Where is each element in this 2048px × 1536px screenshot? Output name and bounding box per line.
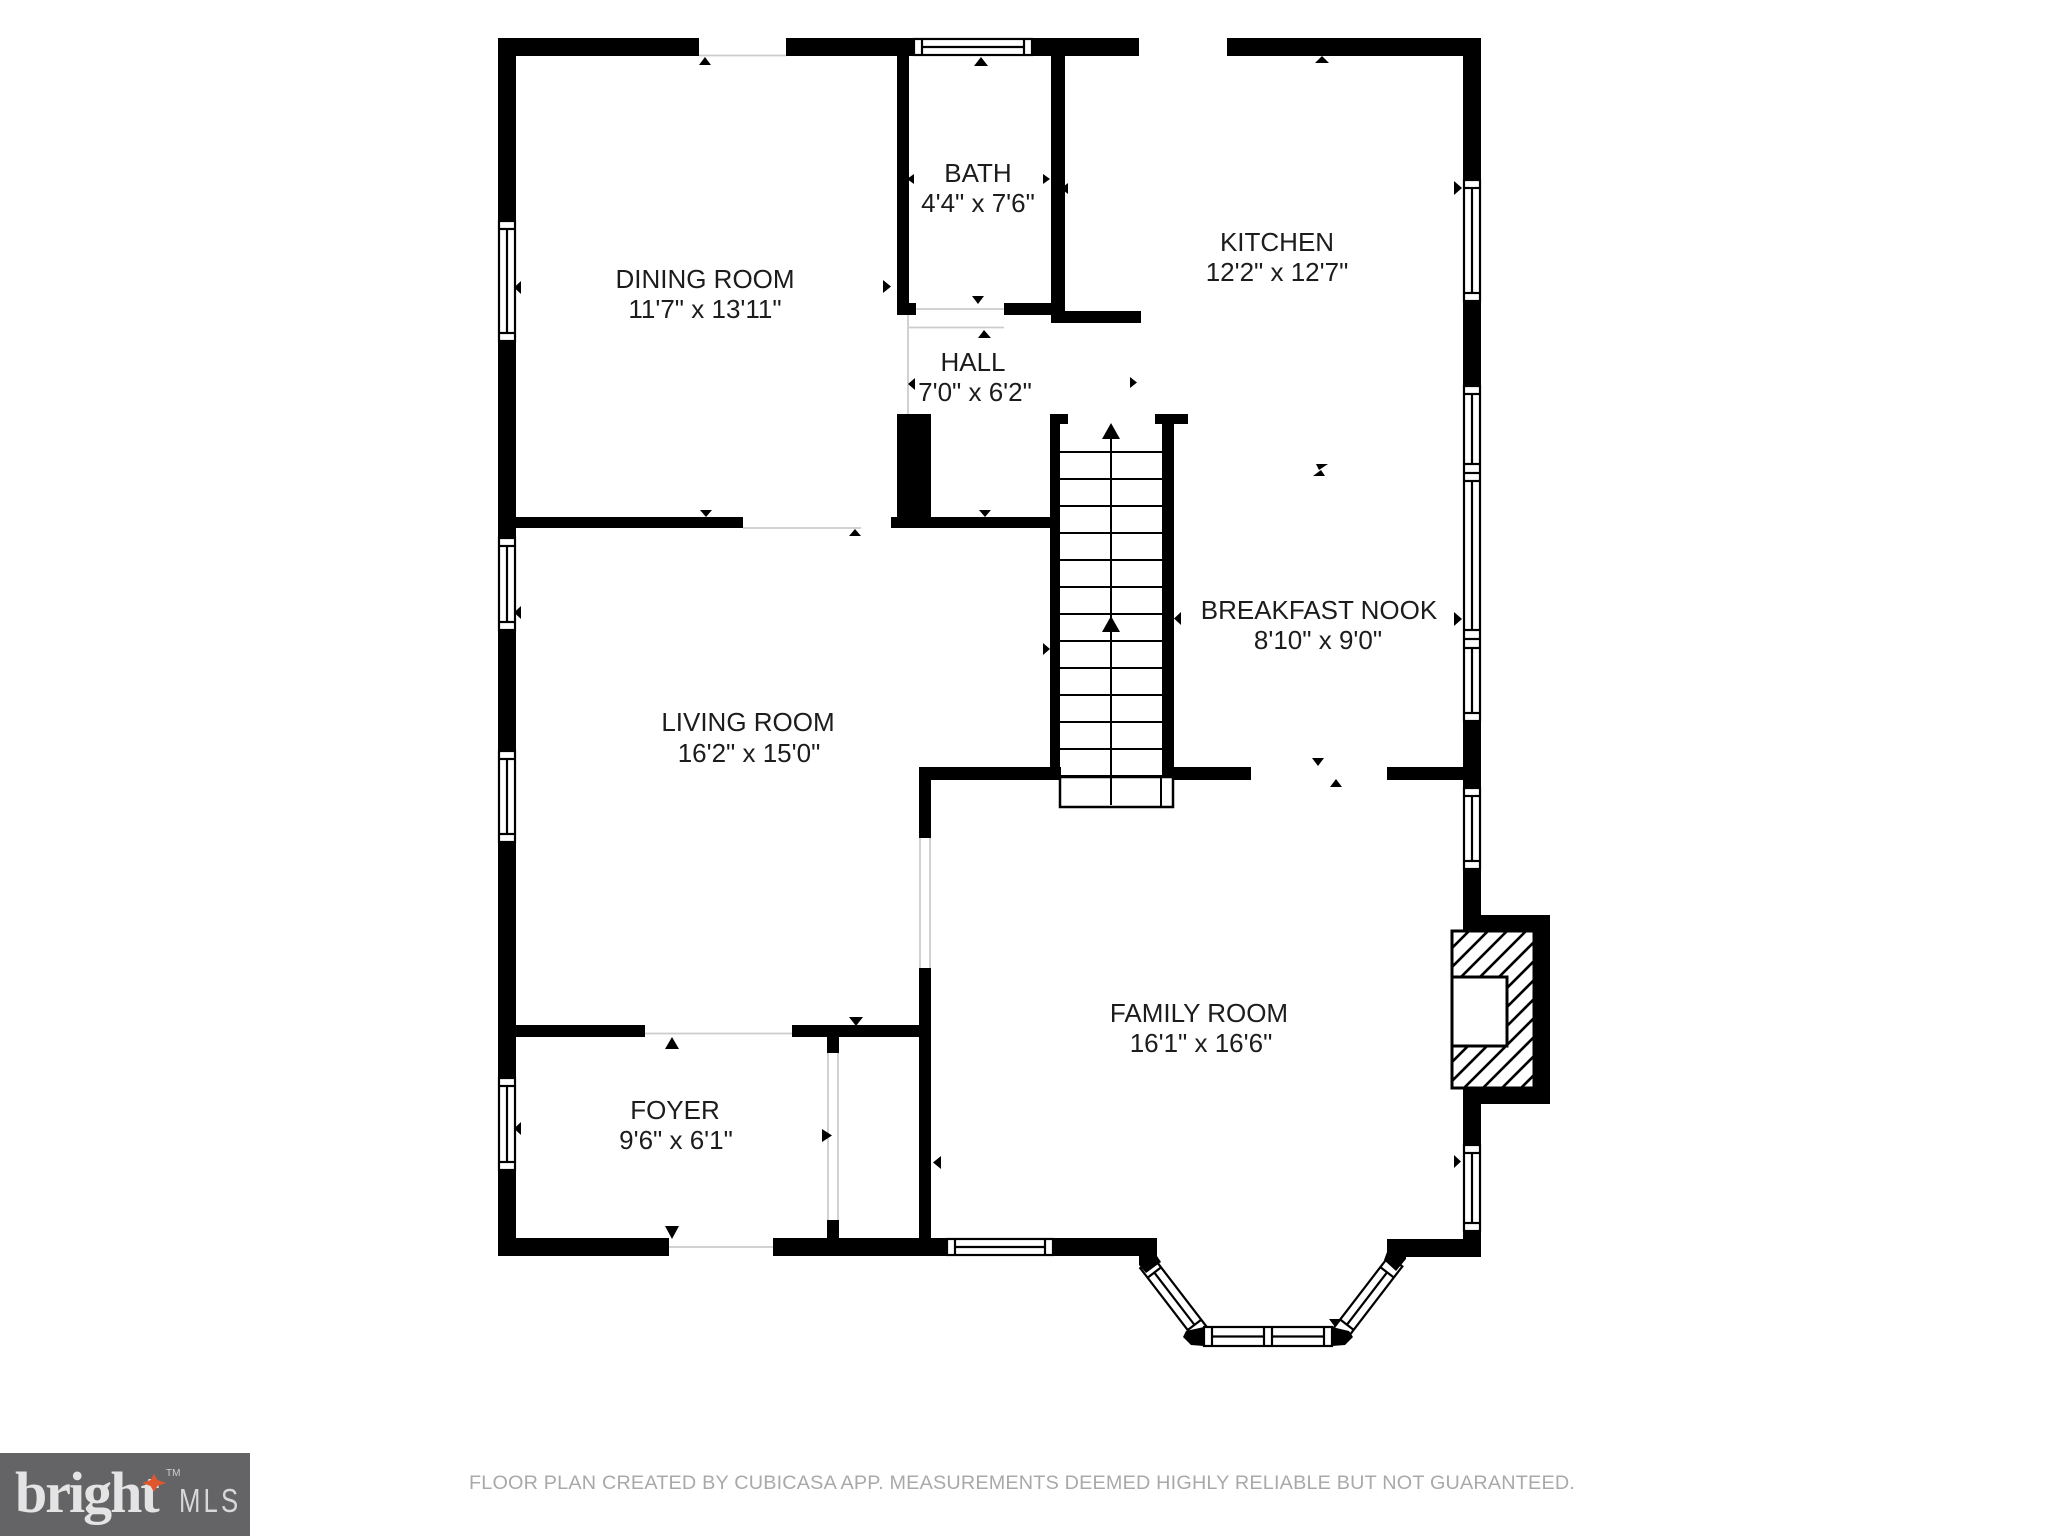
svg-text:FLOOR PLAN CREATED BY CUBICASA: FLOOR PLAN CREATED BY CUBICASA APP. MEAS… xyxy=(469,1472,1575,1494)
svg-text:16'2" x 15'0": 16'2" x 15'0" xyxy=(678,738,821,768)
svg-text:BATH: BATH xyxy=(944,158,1011,188)
svg-text:16'1" x 16'6": 16'1" x 16'6" xyxy=(1130,1028,1273,1058)
svg-text:bright: bright xyxy=(15,1460,160,1525)
svg-text:12'2" x 12'7": 12'2" x 12'7" xyxy=(1206,257,1349,287)
svg-text:4'4" x 7'6": 4'4" x 7'6" xyxy=(921,188,1035,218)
svg-text:BREAKFAST NOOK: BREAKFAST NOOK xyxy=(1201,595,1438,625)
svg-text:MLS: MLS xyxy=(179,1483,241,1520)
svg-text:KITCHEN: KITCHEN xyxy=(1220,227,1334,257)
svg-text:DINING ROOM: DINING ROOM xyxy=(615,264,794,294)
svg-text:9'6" x 6'1": 9'6" x 6'1" xyxy=(619,1125,733,1155)
svg-text:LIVING ROOM: LIVING ROOM xyxy=(661,707,834,737)
svg-text:FAMILY ROOM: FAMILY ROOM xyxy=(1110,998,1288,1028)
svg-text:HALL: HALL xyxy=(940,347,1005,377)
svg-text:11'7" x 13'11": 11'7" x 13'11" xyxy=(628,294,781,324)
svg-text:FOYER: FOYER xyxy=(630,1095,720,1125)
svg-text:8'10" x 9'0": 8'10" x 9'0" xyxy=(1254,625,1382,655)
svg-text:7'0" x 6'2": 7'0" x 6'2" xyxy=(918,377,1032,407)
svg-text:TM: TM xyxy=(166,1468,180,1479)
